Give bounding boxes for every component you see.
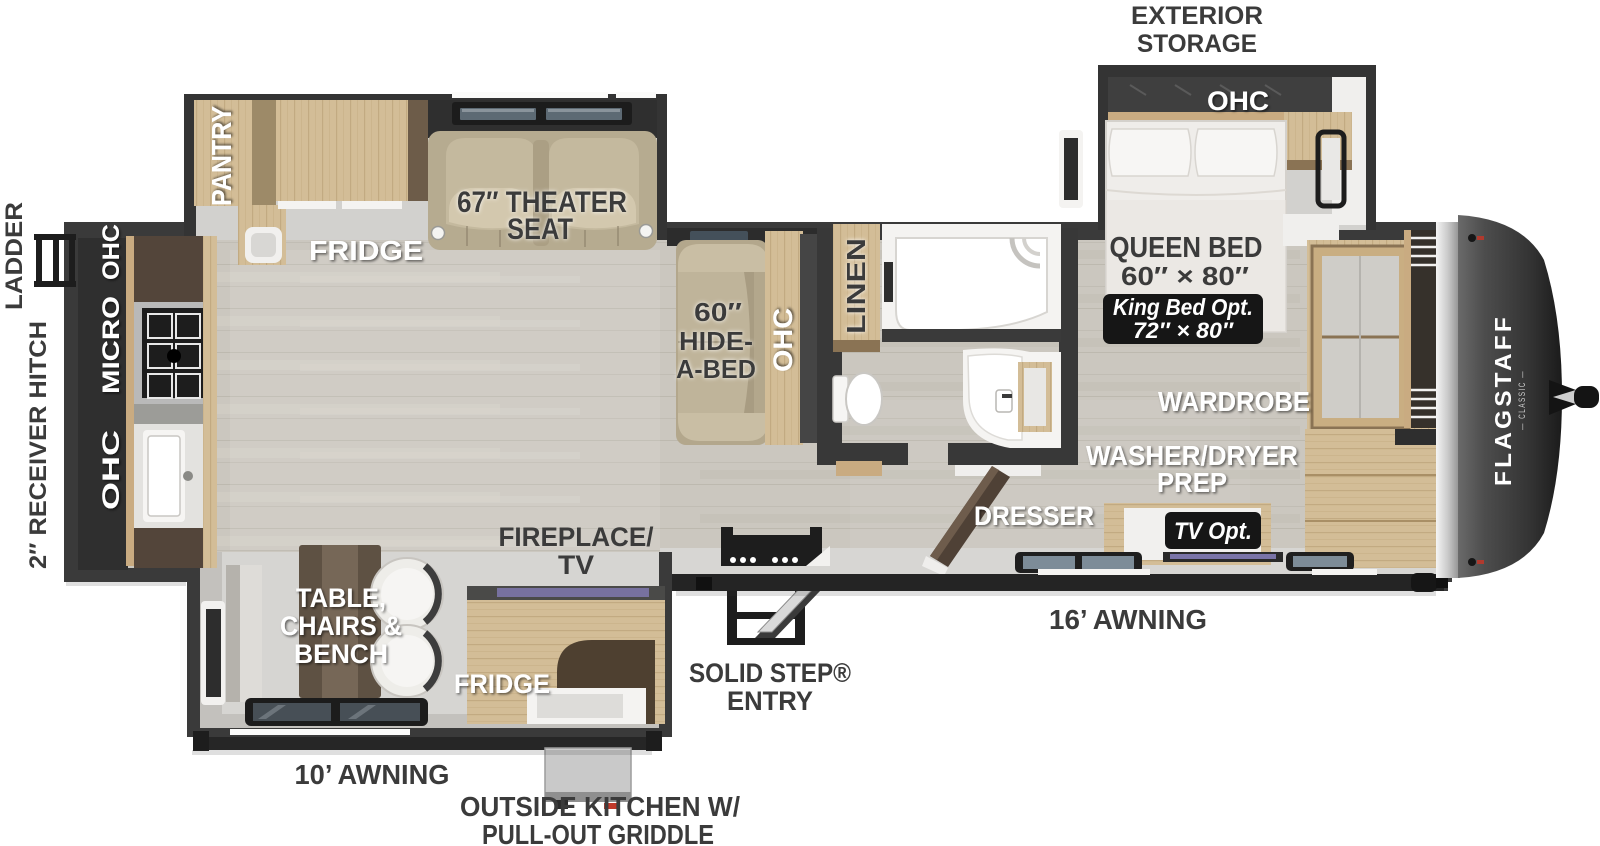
svg-text:LADDER: LADDER: [1, 202, 28, 310]
svg-text:A-BED: A-BED: [676, 354, 756, 384]
svg-text:QUEEN BED: QUEEN BED: [1110, 232, 1263, 264]
svg-text:BENCH: BENCH: [294, 639, 388, 669]
svg-text:OHC: OHC: [98, 430, 125, 510]
svg-text:LINEN: LINEN: [841, 238, 871, 334]
svg-text:72″ × 80″: 72″ × 80″: [1133, 318, 1235, 343]
svg-text:TABLE,: TABLE,: [296, 583, 386, 613]
svg-text:OHC: OHC: [98, 224, 125, 280]
svg-text:PREP: PREP: [1157, 467, 1227, 498]
svg-text:CHAIRS &: CHAIRS &: [280, 611, 402, 641]
svg-text:MICRO: MICRO: [98, 296, 125, 394]
svg-text:OHC: OHC: [1207, 86, 1269, 116]
svg-text:60″: 60″: [694, 297, 742, 327]
svg-text:OHC: OHC: [768, 308, 798, 372]
svg-text:King Bed Opt.: King Bed Opt.: [1113, 294, 1253, 320]
svg-text:SOLID STEP®: SOLID STEP®: [689, 658, 851, 688]
svg-text:TV Opt.: TV Opt.: [1174, 518, 1252, 545]
svg-text:60″ × 80″: 60″ × 80″: [1121, 261, 1249, 291]
svg-text:FLAGSTAFF: FLAGSTAFF: [1490, 314, 1516, 486]
svg-text:PANTRY: PANTRY: [206, 106, 237, 206]
svg-text:10’ AWNING: 10’ AWNING: [295, 759, 450, 790]
svg-text:16’ AWNING: 16’ AWNING: [1049, 604, 1207, 635]
svg-text:ENTRY: ENTRY: [727, 686, 813, 716]
svg-text:FRIDGE: FRIDGE: [454, 669, 550, 699]
svg-text:SEAT: SEAT: [507, 213, 573, 246]
svg-text:PULL-OUT GRIDDLE: PULL-OUT GRIDDLE: [482, 819, 714, 846]
svg-text:STORAGE: STORAGE: [1137, 30, 1257, 58]
svg-text:OUTSIDE KITCHEN W/: OUTSIDE KITCHEN W/: [460, 791, 740, 822]
svg-text:FRIDGE: FRIDGE: [309, 235, 423, 266]
svg-text:FIREPLACE/: FIREPLACE/: [499, 522, 654, 552]
svg-text:TV: TV: [558, 550, 594, 580]
svg-text:WARDROBE: WARDROBE: [1158, 386, 1310, 417]
svg-text:EXTERIOR: EXTERIOR: [1131, 2, 1263, 30]
svg-text:— CLASSIC —: — CLASSIC —: [1517, 370, 1527, 430]
svg-text:2″ RECEIVER HITCH: 2″ RECEIVER HITCH: [25, 321, 52, 569]
svg-text:HIDE-: HIDE-: [679, 326, 753, 356]
svg-text:DRESSER: DRESSER: [974, 501, 1094, 531]
